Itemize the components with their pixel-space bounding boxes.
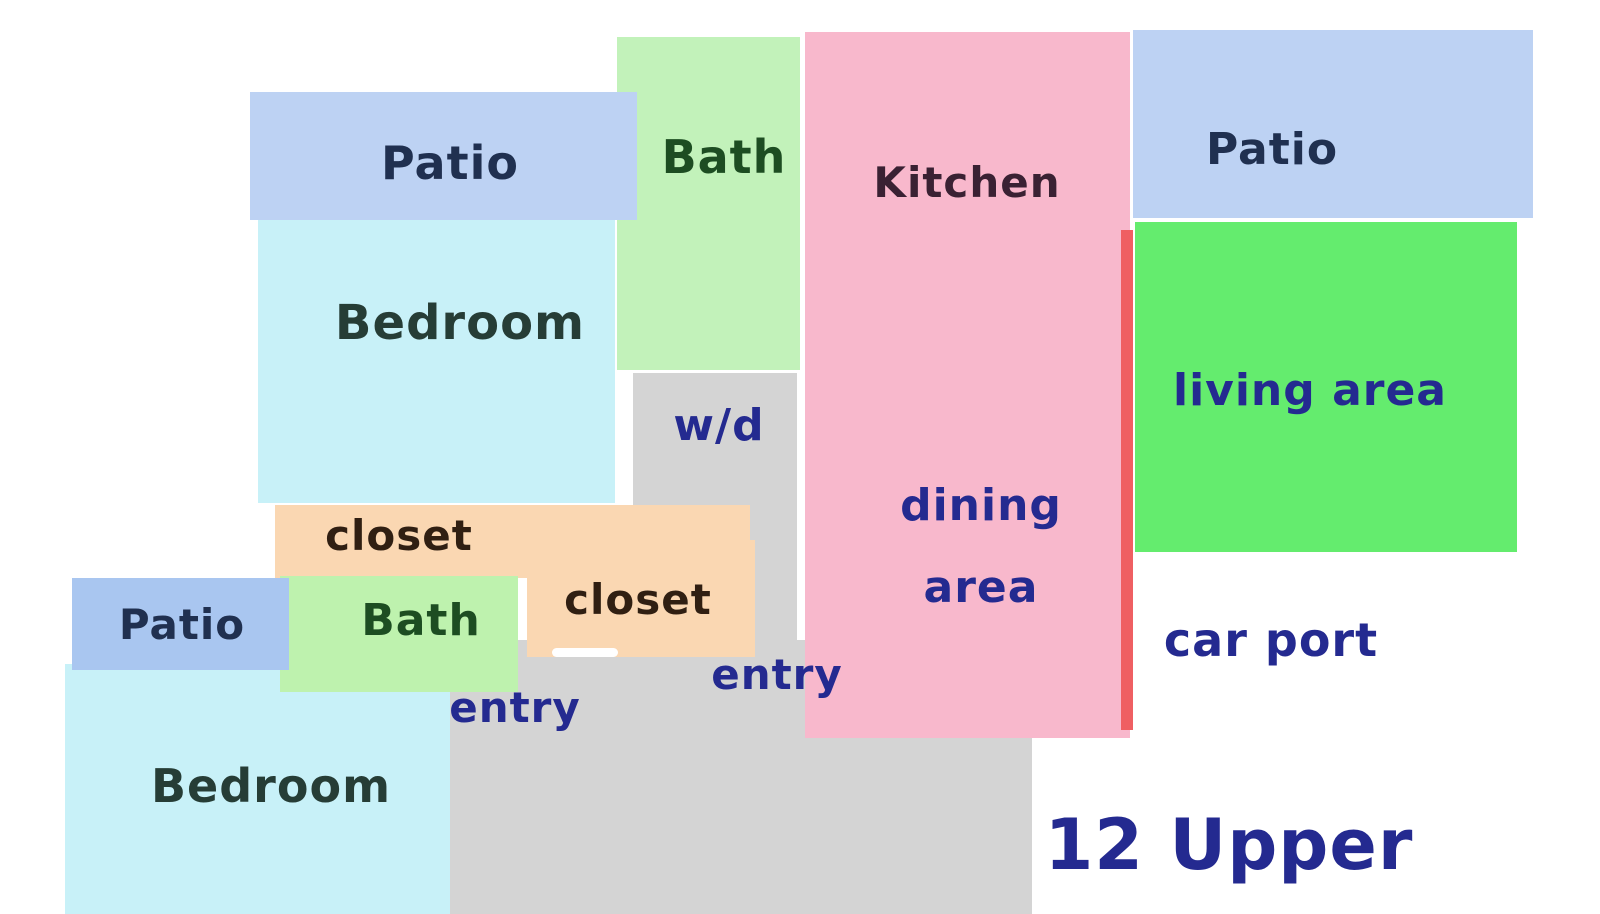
bedroom-top-label: Bedroom <box>335 299 585 347</box>
floor-plan: PatioBathKitchenPatioBedroomw/ddiningare… <box>0 0 1600 914</box>
kitchen-label: Kitchen <box>873 162 1060 204</box>
floor-title: 12 Upper <box>1045 810 1414 880</box>
bath-top-room <box>617 37 800 370</box>
car-port-label: car port <box>1164 617 1378 663</box>
dining-label: dining <box>900 484 1062 528</box>
patio-lower-left-label: Patio <box>119 604 245 646</box>
wd-label: w/d <box>673 404 764 448</box>
entry-2-label: entry <box>711 654 843 696</box>
patio-top-left-label: Patio <box>381 140 519 186</box>
bedroom-bottom-label: Bedroom <box>151 763 391 809</box>
patio-top-right-label: Patio <box>1206 128 1338 172</box>
dining-area-label: area <box>924 566 1039 610</box>
living-area-label: living area <box>1173 369 1447 413</box>
kitchen-dining-room <box>805 32 1130 738</box>
closet-1-label: closet <box>325 515 473 557</box>
bedroom-top-room <box>258 220 615 503</box>
white-streak <box>552 648 618 657</box>
entry-1-label: entry <box>449 687 581 729</box>
bath-top-label: Bath <box>662 134 787 180</box>
bath-lower-label: Bath <box>361 599 481 643</box>
closet-2-label: closet <box>564 579 712 621</box>
divider-line <box>1121 230 1133 730</box>
